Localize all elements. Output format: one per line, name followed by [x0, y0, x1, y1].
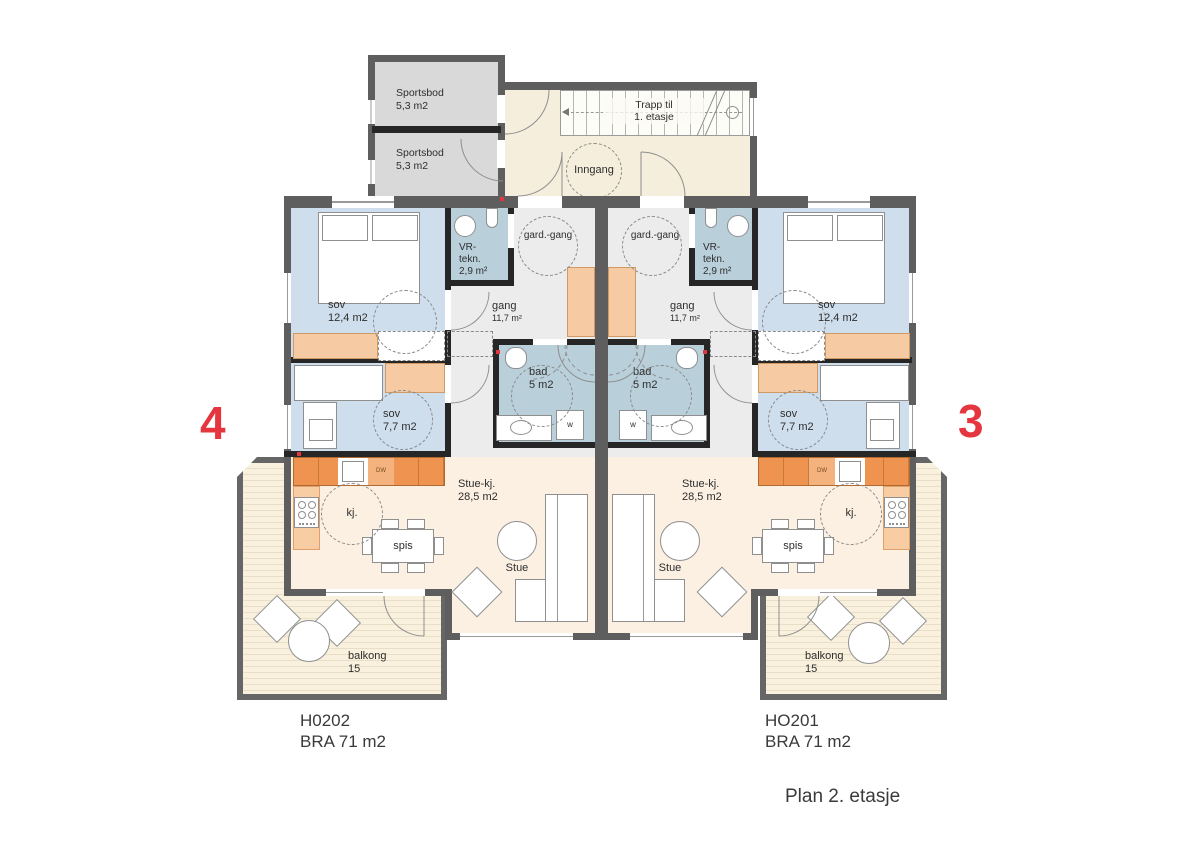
vr-fixture-left — [486, 208, 498, 228]
wardrobe-left-1 — [293, 333, 378, 359]
storage-divider-wall — [372, 126, 501, 133]
sofa-left-chaise — [515, 579, 546, 622]
turning-circle — [622, 216, 682, 276]
vr-bottom-wall-left — [451, 280, 514, 286]
main-left-wall — [284, 196, 291, 596]
desk-chair-right — [870, 419, 894, 441]
gard-gang-left-label: gard.-gang — [505, 230, 591, 242]
vr-left-label: VR-tekn.2,9 m² — [459, 242, 487, 278]
bath-door-left — [533, 339, 567, 345]
living-right-balcony-door — [778, 589, 820, 596]
single-bed-left — [294, 365, 383, 401]
storage-window-2 — [367, 160, 375, 184]
living-left-south-window — [460, 633, 573, 640]
balcony-left-table — [288, 620, 330, 662]
dishwasher-label: DW — [817, 468, 827, 474]
dining-table-left: spis — [372, 529, 434, 563]
vr-fixture-right — [705, 208, 717, 228]
wardrobe-right-3 — [758, 363, 818, 393]
gang-right-label: gang11,7 m² — [670, 300, 700, 324]
turning-circle — [518, 216, 578, 276]
entry-closet-right — [608, 267, 636, 337]
water-heater-left — [454, 215, 476, 237]
bedroom-large-right-window-top — [808, 196, 870, 208]
bedroom-large-right-label: sov12,4 m2 — [818, 299, 858, 325]
unit-right-id: HO201BRA 71 m2 — [765, 710, 851, 752]
kitchen-sink-right — [839, 461, 861, 482]
detector-dot-2 — [496, 350, 500, 354]
single-bed-right — [820, 365, 909, 401]
bath-bottom-wall-right — [608, 442, 710, 448]
entry-right-window — [750, 98, 757, 136]
chair — [797, 519, 815, 529]
dishwasher-label: DW — [376, 468, 386, 474]
bedroom-large-right-window-side — [909, 273, 916, 323]
stue-right-label: Stue — [643, 562, 697, 575]
main-right-wall — [909, 196, 916, 596]
living-left-balcony-door — [383, 589, 425, 596]
kitchen-sink-left — [342, 461, 364, 482]
balcony-right-label: balkong15 — [805, 650, 844, 676]
detector-dot-3 — [703, 350, 707, 354]
detector-dot-4 — [297, 452, 301, 456]
wardrobe-right-1 — [825, 333, 910, 359]
pillow — [787, 215, 833, 241]
bedroom-small-left-door — [445, 365, 451, 403]
stue-left-label: Stue — [490, 562, 544, 575]
unit-left-marker: 4 — [200, 400, 226, 446]
balcony-right-table — [848, 622, 890, 664]
kitchen-right-label: kj. — [820, 507, 882, 520]
bedroom-large-left-window-top — [332, 196, 394, 208]
storage-room-2-label: Sportsbod5,3 m2 — [396, 147, 444, 172]
dishwasher-right: DW — [809, 458, 835, 485]
plan-title: Plan 2. etasje — [785, 786, 900, 808]
stair-handrail-end — [726, 106, 739, 119]
washer-label: w — [567, 420, 573, 429]
chair — [771, 519, 789, 529]
kitchen-left-label: kj. — [321, 507, 383, 520]
floor-plan: balkong15 balkong15 Sportsbod5,3 m2 Spor… — [0, 0, 1200, 848]
bedroom-small-left-label: sov7,7 m2 — [383, 408, 417, 434]
turning-circle — [762, 290, 826, 354]
step-wall-right — [751, 589, 758, 640]
living-left-balcony-window — [326, 589, 383, 596]
entry-top-wall — [505, 82, 757, 90]
storage-window-1 — [367, 100, 375, 124]
coffee-table-left — [497, 521, 537, 561]
entrance-label: Inngang — [560, 164, 628, 177]
stove-right — [884, 497, 909, 528]
chair — [434, 537, 444, 555]
stove-left — [294, 497, 319, 528]
bedroom-small-right-window-side — [909, 405, 916, 449]
sofa-right-chaise — [654, 579, 685, 622]
living-right-label: Stue-kj.28,5 m2 — [682, 478, 722, 504]
vr-right-label: VR-tekn.2,9 m² — [703, 242, 731, 278]
pillow — [372, 215, 418, 241]
bedroom-large-left-label: sov12,4 m2 — [328, 299, 368, 325]
living-right-balcony-window — [820, 589, 877, 596]
living-left-label: Stue-kj.28,5 m2 — [458, 478, 498, 504]
reserved-space-right — [710, 331, 756, 357]
gang-left-label: gang11,7 m² — [492, 300, 522, 324]
bedroom-small-right-label: sov7,7 m2 — [780, 408, 814, 434]
pillow — [322, 215, 368, 241]
party-wall — [595, 196, 608, 640]
storage-room-1-label: Sportsbod5,3 m2 — [396, 87, 444, 112]
apartment-left-entry-door — [518, 196, 562, 208]
balcony-left-label: balkong15 — [348, 650, 387, 676]
sofa-right-vertical — [612, 494, 655, 622]
chair — [381, 519, 399, 529]
toilet-right — [676, 347, 698, 369]
chair — [752, 537, 762, 555]
coffee-table-right — [660, 521, 700, 561]
apartment-right-entry-door — [640, 196, 684, 208]
chair — [771, 563, 789, 573]
stair-direction-arrow — [562, 108, 569, 116]
sofa-left-vertical — [545, 494, 588, 622]
dishwasher-left: DW — [368, 458, 394, 485]
stair-label: Trapp til1. etasje — [603, 98, 705, 124]
dining-table-right: spis — [762, 529, 824, 563]
bath-door-right — [637, 339, 671, 345]
water-heater-right — [727, 215, 749, 237]
unit-right-marker: 3 — [958, 398, 984, 444]
reserved-space-left — [447, 331, 493, 357]
chair — [797, 563, 815, 573]
desk-chair-left — [309, 419, 333, 441]
bathroom-right-label: bad5 m2 — [633, 366, 657, 392]
turning-circle — [373, 290, 437, 354]
dining-label: spis — [393, 540, 413, 552]
bedroom-large-right-door — [752, 290, 758, 330]
toilet-left — [505, 347, 527, 369]
chair — [407, 519, 425, 529]
living-right-south-window — [630, 633, 743, 640]
entry-closet-left — [567, 267, 595, 337]
unit-left-id: H0202BRA 71 m2 — [300, 710, 386, 752]
detector-dot-1 — [500, 197, 504, 201]
bathroom-left-label: bad5 m2 — [529, 366, 553, 392]
chair — [824, 537, 834, 555]
wardrobe-left-3 — [385, 363, 445, 393]
chair — [381, 563, 399, 573]
vr-bottom-wall-right — [689, 280, 752, 286]
bath-bottom-wall-left — [493, 442, 595, 448]
gard-gang-right-label: gard.-gang — [612, 230, 698, 242]
pillow — [837, 215, 883, 241]
bedroom-large-left-door — [445, 290, 451, 330]
chair — [407, 563, 425, 573]
bedroom-small-left-window-side — [284, 405, 291, 449]
dining-label: spis — [783, 540, 803, 552]
washer-label: w — [630, 420, 636, 429]
bedroom-large-left-window-side — [284, 273, 291, 323]
